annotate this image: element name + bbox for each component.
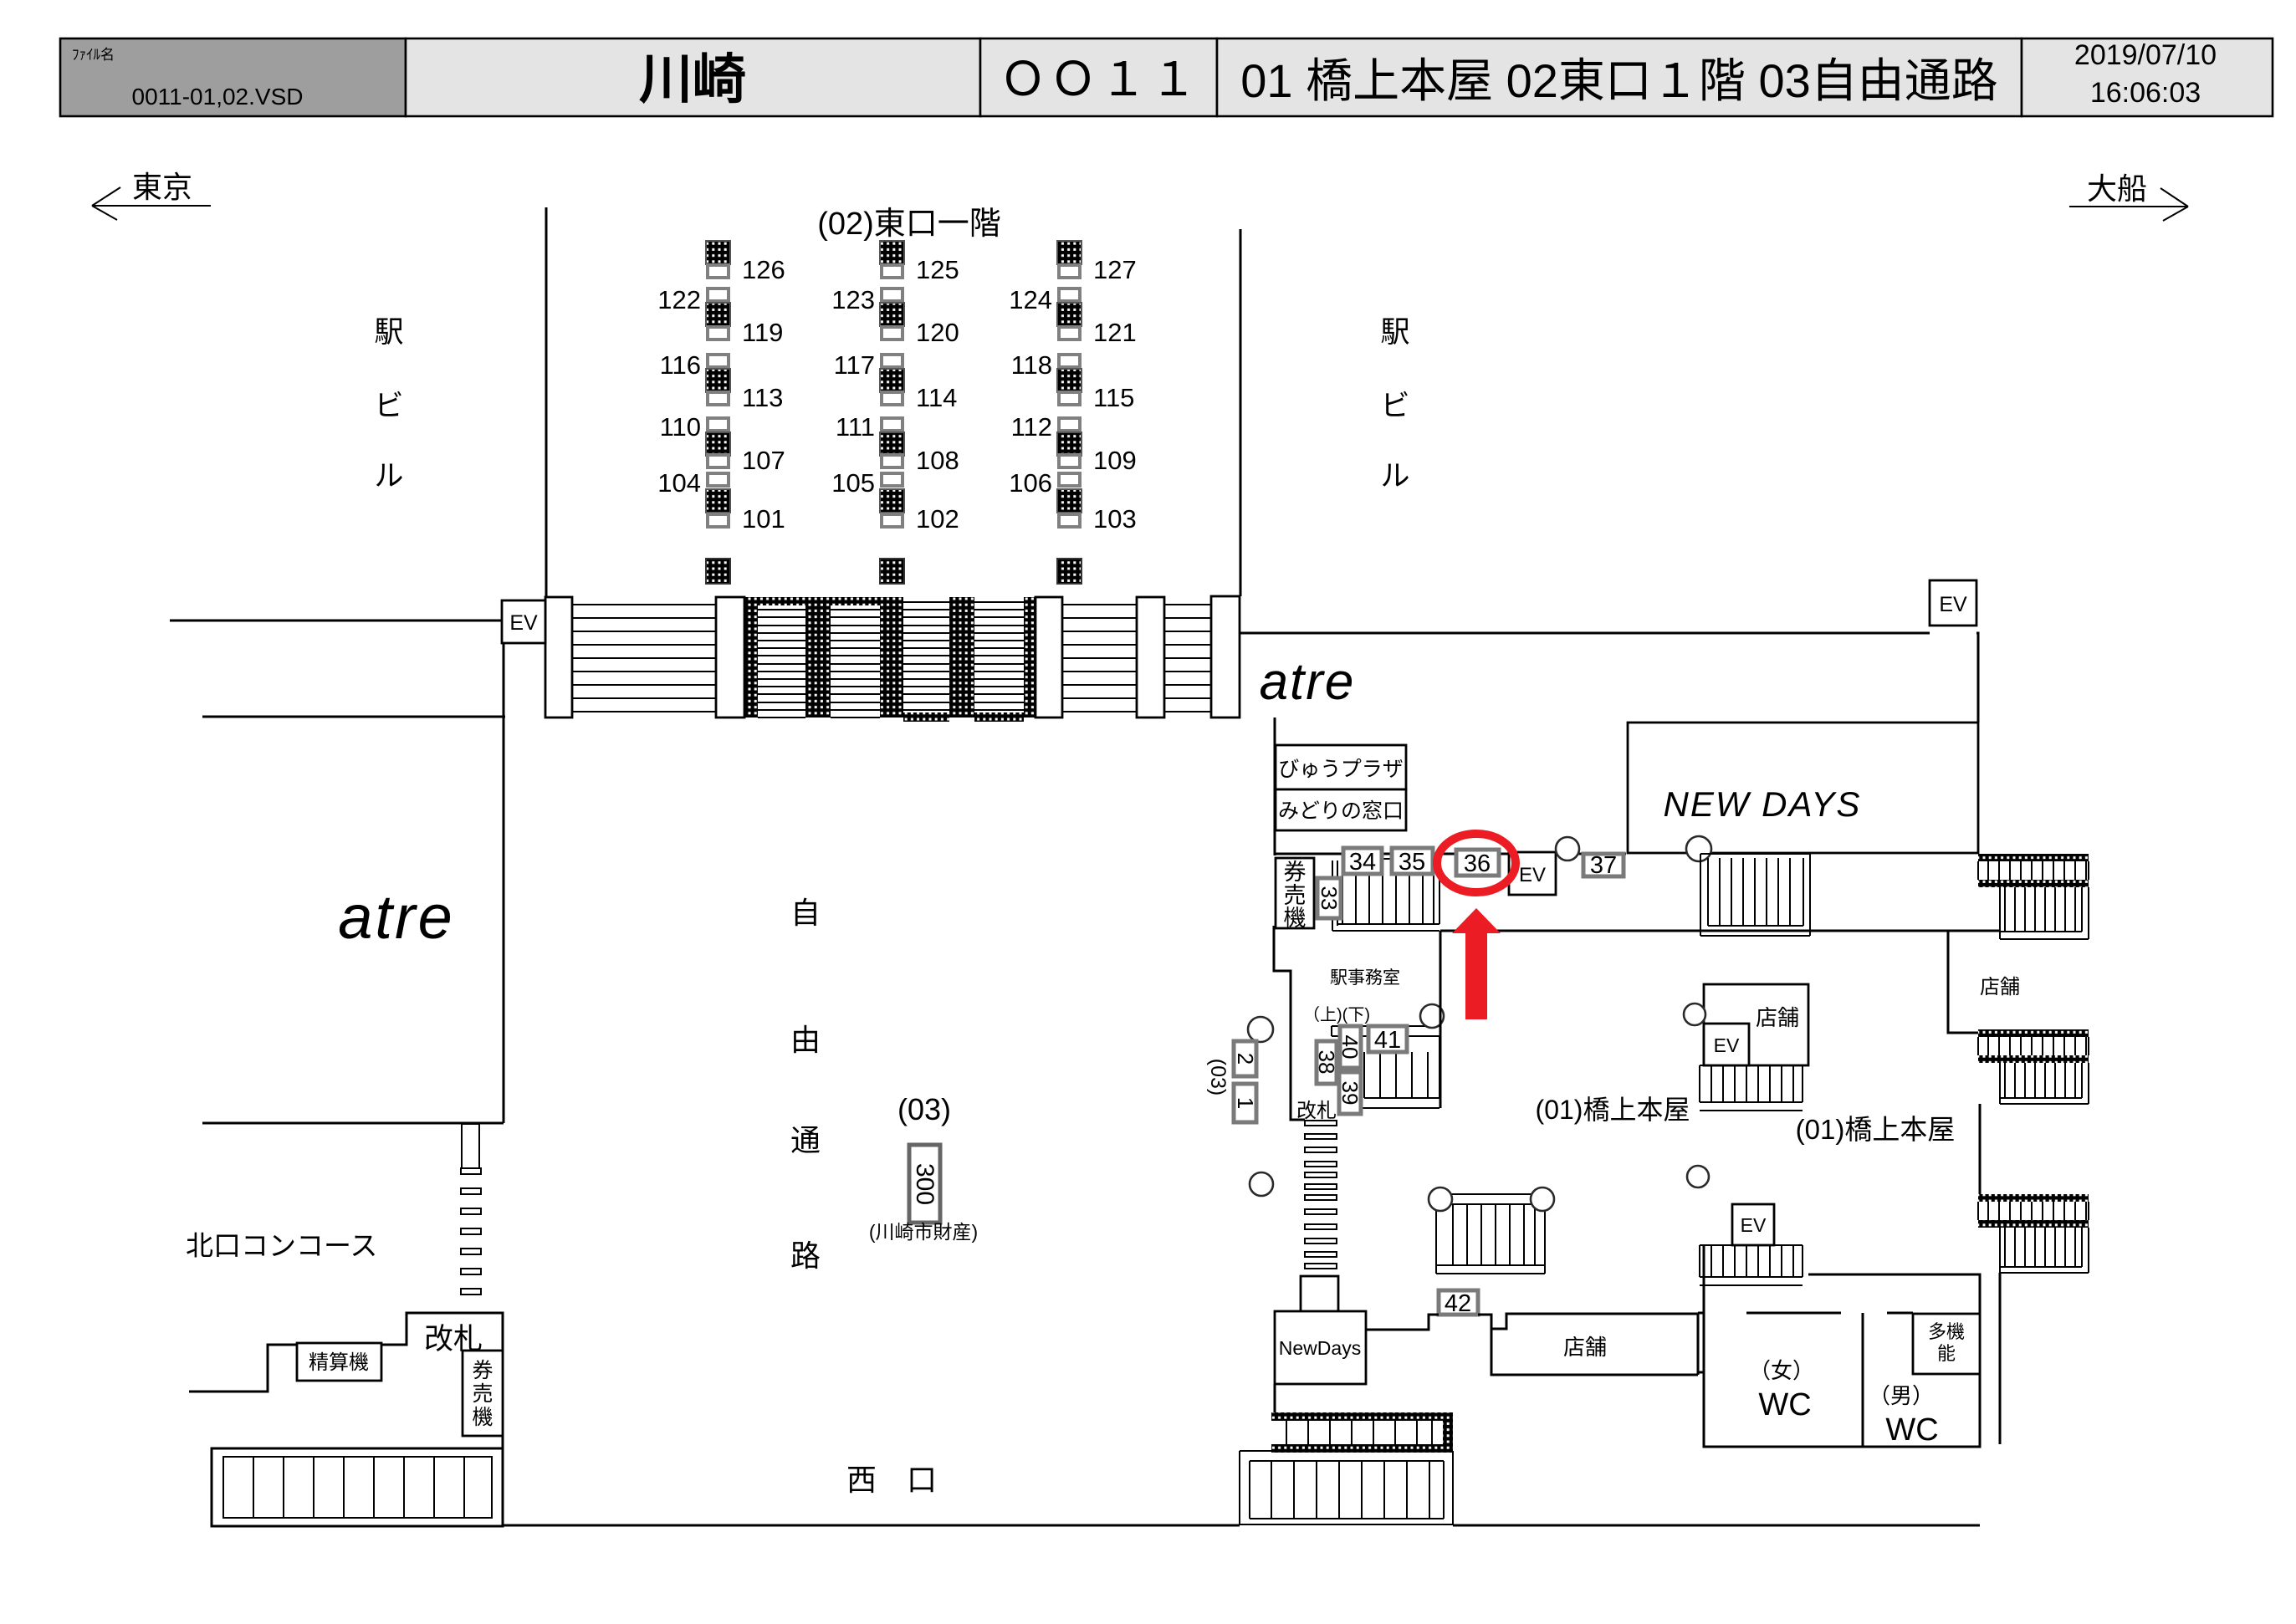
svg-text:102: 102 xyxy=(916,504,959,534)
svg-text:東京: 東京 xyxy=(132,170,192,204)
svg-text:自: 自 xyxy=(790,896,821,930)
svg-text:124: 124 xyxy=(1009,285,1052,314)
svg-text:ル: ル xyxy=(1380,460,1409,493)
svg-text:機: 機 xyxy=(1284,906,1307,931)
svg-text:北口コンコース: 北口コンコース xyxy=(186,1230,377,1261)
svg-text:売: 売 xyxy=(1284,883,1307,908)
svg-text:104: 104 xyxy=(657,468,701,498)
svg-text:118: 118 xyxy=(1011,350,1052,380)
svg-text:NEW DAYS: NEW DAYS xyxy=(1664,784,1862,824)
svg-text:駅: 駅 xyxy=(374,316,403,349)
svg-text:大船: 大船 xyxy=(2087,171,2147,206)
svg-text:(01)橋上本屋: (01)橋上本屋 xyxy=(1796,1114,1956,1145)
svg-text:105: 105 xyxy=(831,468,875,498)
svg-text:(03): (03) xyxy=(897,1092,951,1126)
svg-text:16:06:03: 16:06:03 xyxy=(2090,77,2201,109)
svg-text:0011-01,02.VSD: 0011-01,02.VSD xyxy=(132,84,304,110)
svg-text:(川崎市財産): (川崎市財産) xyxy=(869,1221,978,1243)
svg-text:111: 111 xyxy=(836,412,875,442)
svg-text:(02)東口一階: (02)東口一階 xyxy=(817,207,1001,242)
svg-text:01 橋上本屋 02東口１階 03自由通路: 01 橋上本屋 02東口１階 03自由通路 xyxy=(1240,54,1998,107)
svg-text:西口: 西口 xyxy=(846,1463,967,1497)
svg-text:WC: WC xyxy=(1758,1387,1811,1422)
svg-text:36: 36 xyxy=(1464,850,1491,877)
svg-text:ル: ル xyxy=(374,460,403,493)
svg-text:38: 38 xyxy=(1314,1050,1339,1075)
svg-text:116: 116 xyxy=(660,350,701,380)
svg-text:改札: 改札 xyxy=(1296,1100,1337,1122)
svg-text:126: 126 xyxy=(742,255,785,284)
svg-text:2: 2 xyxy=(1233,1053,1258,1065)
svg-text:EV: EV xyxy=(1714,1034,1740,1056)
svg-text:300: 300 xyxy=(911,1163,938,1205)
svg-text:120: 120 xyxy=(916,318,959,347)
svg-text:113: 113 xyxy=(742,383,783,412)
svg-text:駅事務室: 駅事務室 xyxy=(1330,968,1400,988)
svg-text:NewDays: NewDays xyxy=(1279,1337,1361,1359)
svg-text:117: 117 xyxy=(834,350,875,380)
svg-text:35: 35 xyxy=(1399,849,1425,876)
svg-text:37: 37 xyxy=(1590,852,1617,879)
svg-text:atre: atre xyxy=(1260,653,1356,711)
svg-text:（男）: （男） xyxy=(1869,1383,1934,1408)
svg-text:2019/07/10: 2019/07/10 xyxy=(2074,39,2217,71)
svg-text:119: 119 xyxy=(742,318,783,347)
svg-text:(03): (03) xyxy=(1206,1059,1230,1095)
svg-text:103: 103 xyxy=(1093,504,1137,534)
svg-text:42: 42 xyxy=(1445,1290,1471,1317)
svg-text:通: 通 xyxy=(790,1123,821,1157)
svg-text:40: 40 xyxy=(1337,1035,1363,1060)
svg-text:34: 34 xyxy=(1349,849,1376,876)
svg-text:川崎: 川崎 xyxy=(639,49,746,110)
svg-text:EV: EV xyxy=(1519,864,1546,886)
svg-text:由: 由 xyxy=(790,1023,821,1057)
svg-text:EV: EV xyxy=(1939,593,1967,616)
svg-text:券: 券 xyxy=(472,1359,493,1382)
svg-text:能: 能 xyxy=(1937,1343,1956,1364)
svg-text:108: 108 xyxy=(916,446,959,475)
svg-text:33: 33 xyxy=(1317,886,1342,911)
svg-text:atre: atre xyxy=(338,882,455,952)
svg-text:店舗: 店舗 xyxy=(1980,976,2020,998)
svg-text:101: 101 xyxy=(742,504,785,534)
svg-text:110: 110 xyxy=(660,412,701,442)
svg-text:店舗: 店舗 xyxy=(1563,1335,1607,1360)
svg-text:121: 121 xyxy=(1093,318,1137,347)
svg-text:WC: WC xyxy=(1885,1412,1938,1448)
svg-text:123: 123 xyxy=(831,285,875,314)
svg-text:ﾌｧｲﾙ名: ﾌｧｲﾙ名 xyxy=(72,47,115,63)
svg-text:(01)橋上本屋: (01)橋上本屋 xyxy=(1536,1095,1690,1125)
svg-text:107: 107 xyxy=(742,446,785,475)
svg-text:みどりの窓口: みどりの窓口 xyxy=(1278,799,1404,823)
svg-text:EV: EV xyxy=(1741,1214,1767,1236)
svg-text:106: 106 xyxy=(1009,468,1052,498)
svg-text:39: 39 xyxy=(1337,1081,1363,1106)
svg-text:109: 109 xyxy=(1093,446,1137,475)
svg-text:1: 1 xyxy=(1233,1097,1258,1109)
svg-text:びゅうプラザ: びゅうプラザ xyxy=(1278,758,1404,781)
svg-text:券: 券 xyxy=(1284,860,1307,885)
svg-text:駅: 駅 xyxy=(1380,316,1409,349)
svg-text:125: 125 xyxy=(916,255,959,284)
svg-text:店舗: 店舗 xyxy=(1756,1005,1799,1030)
svg-text:114: 114 xyxy=(916,383,957,412)
svg-text:路: 路 xyxy=(790,1238,821,1273)
svg-text:41: 41 xyxy=(1374,1027,1401,1054)
svg-text:115: 115 xyxy=(1093,383,1134,412)
svg-text:多機: 多機 xyxy=(1928,1321,1965,1342)
svg-text:（上)(下): （上)(下) xyxy=(1303,1005,1370,1024)
svg-text:127: 127 xyxy=(1093,255,1137,284)
svg-text:機: 機 xyxy=(472,1406,493,1429)
svg-text:112: 112 xyxy=(1011,412,1052,442)
svg-text:ＯＯ１１: ＯＯ１１ xyxy=(1000,53,1200,105)
svg-text:122: 122 xyxy=(657,285,701,314)
svg-text:ビ: ビ xyxy=(374,390,403,422)
svg-text:精算機: 精算機 xyxy=(309,1351,369,1374)
svg-text:（女）: （女） xyxy=(1749,1358,1814,1383)
svg-text:EV: EV xyxy=(509,611,538,635)
svg-text:売: 売 xyxy=(472,1382,493,1406)
svg-text:ビ: ビ xyxy=(1380,390,1409,422)
